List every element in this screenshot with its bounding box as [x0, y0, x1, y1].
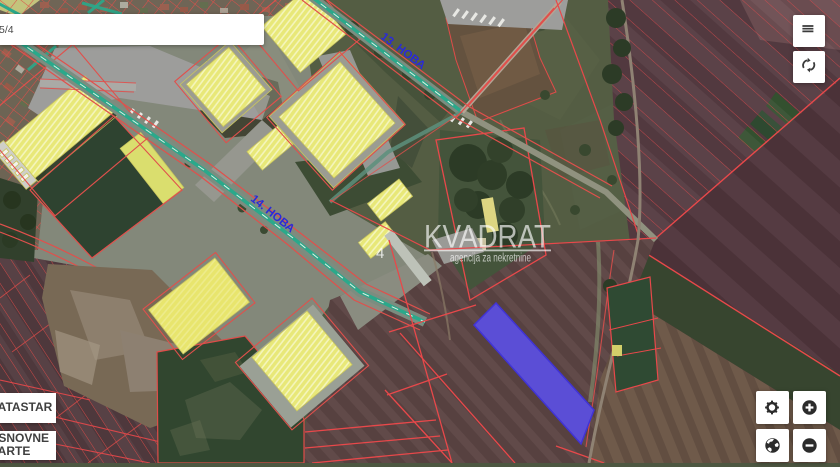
svg-text:agencija za nekretnine: agencija za nekretnine: [450, 253, 531, 265]
svg-text:KVADRAT: KVADRAT: [424, 219, 551, 255]
svg-text:4: 4: [376, 245, 384, 262]
